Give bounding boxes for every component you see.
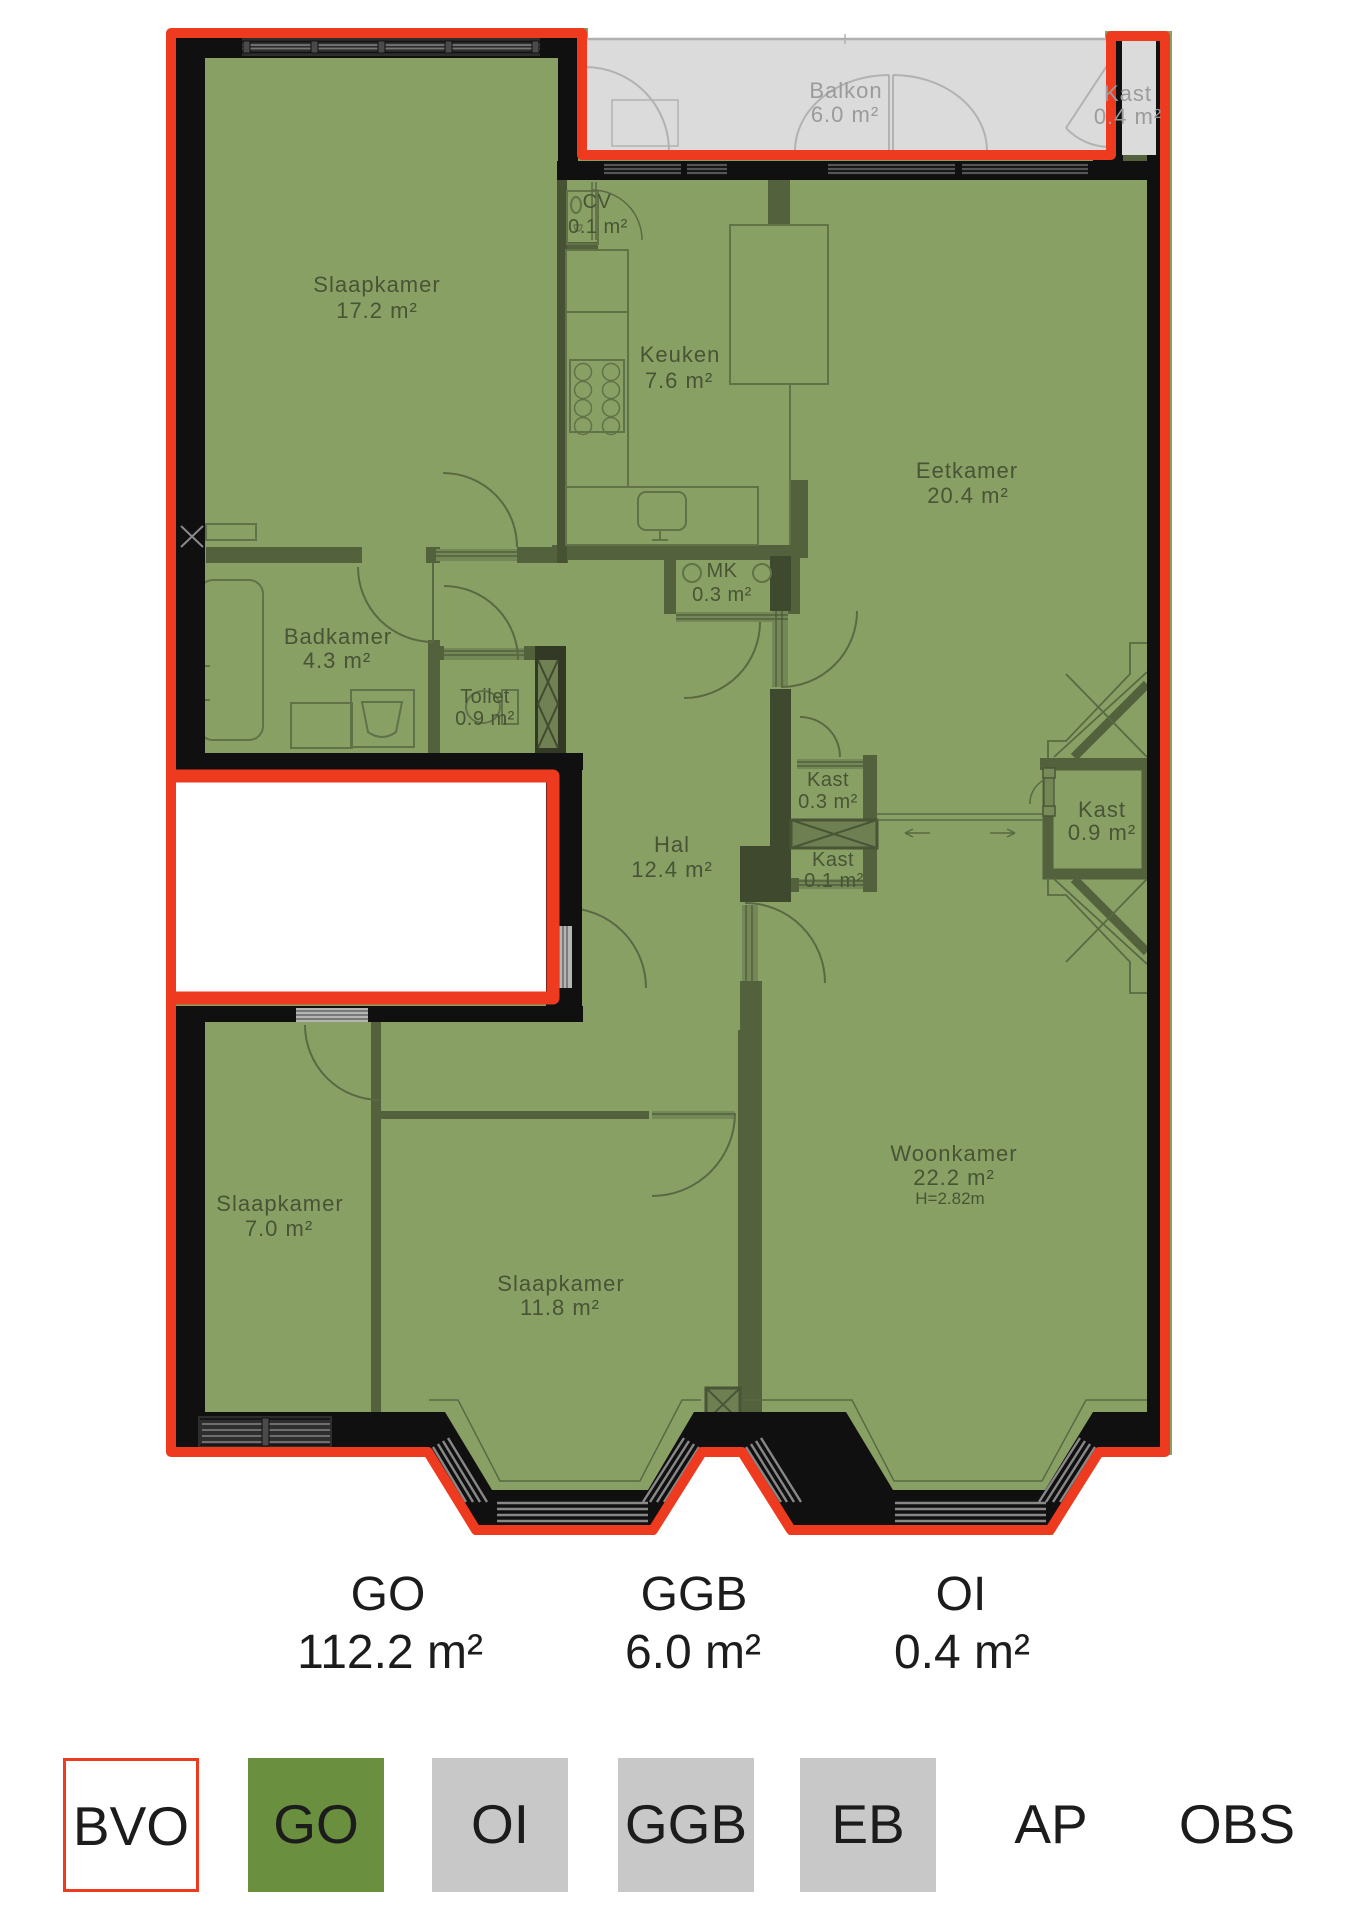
svg-text:GGB: GGB	[625, 1793, 747, 1855]
svg-text:OBS: OBS	[1179, 1793, 1295, 1855]
svg-text:112.2 m²: 112.2 m²	[297, 1626, 483, 1679]
svg-text:GO: GO	[351, 1568, 426, 1621]
svg-text:Balkon: Balkon	[809, 78, 882, 103]
svg-text:BVO: BVO	[73, 1795, 189, 1857]
svg-text:6.0 m²: 6.0 m²	[811, 102, 879, 127]
svg-text:0.4 m²: 0.4 m²	[894, 1626, 1030, 1679]
svg-text:Kast: Kast	[1104, 81, 1152, 106]
svg-text:0.4 m²: 0.4 m²	[1094, 104, 1162, 129]
svg-text:EB: EB	[831, 1793, 904, 1855]
svg-text:GO: GO	[273, 1793, 359, 1855]
svg-text:OI: OI	[471, 1793, 529, 1855]
svg-text:AP: AP	[1014, 1793, 1087, 1855]
svg-text:OI: OI	[936, 1568, 987, 1621]
svg-text:6.0 m²: 6.0 m²	[625, 1626, 761, 1679]
svg-text:GGB: GGB	[641, 1568, 748, 1621]
